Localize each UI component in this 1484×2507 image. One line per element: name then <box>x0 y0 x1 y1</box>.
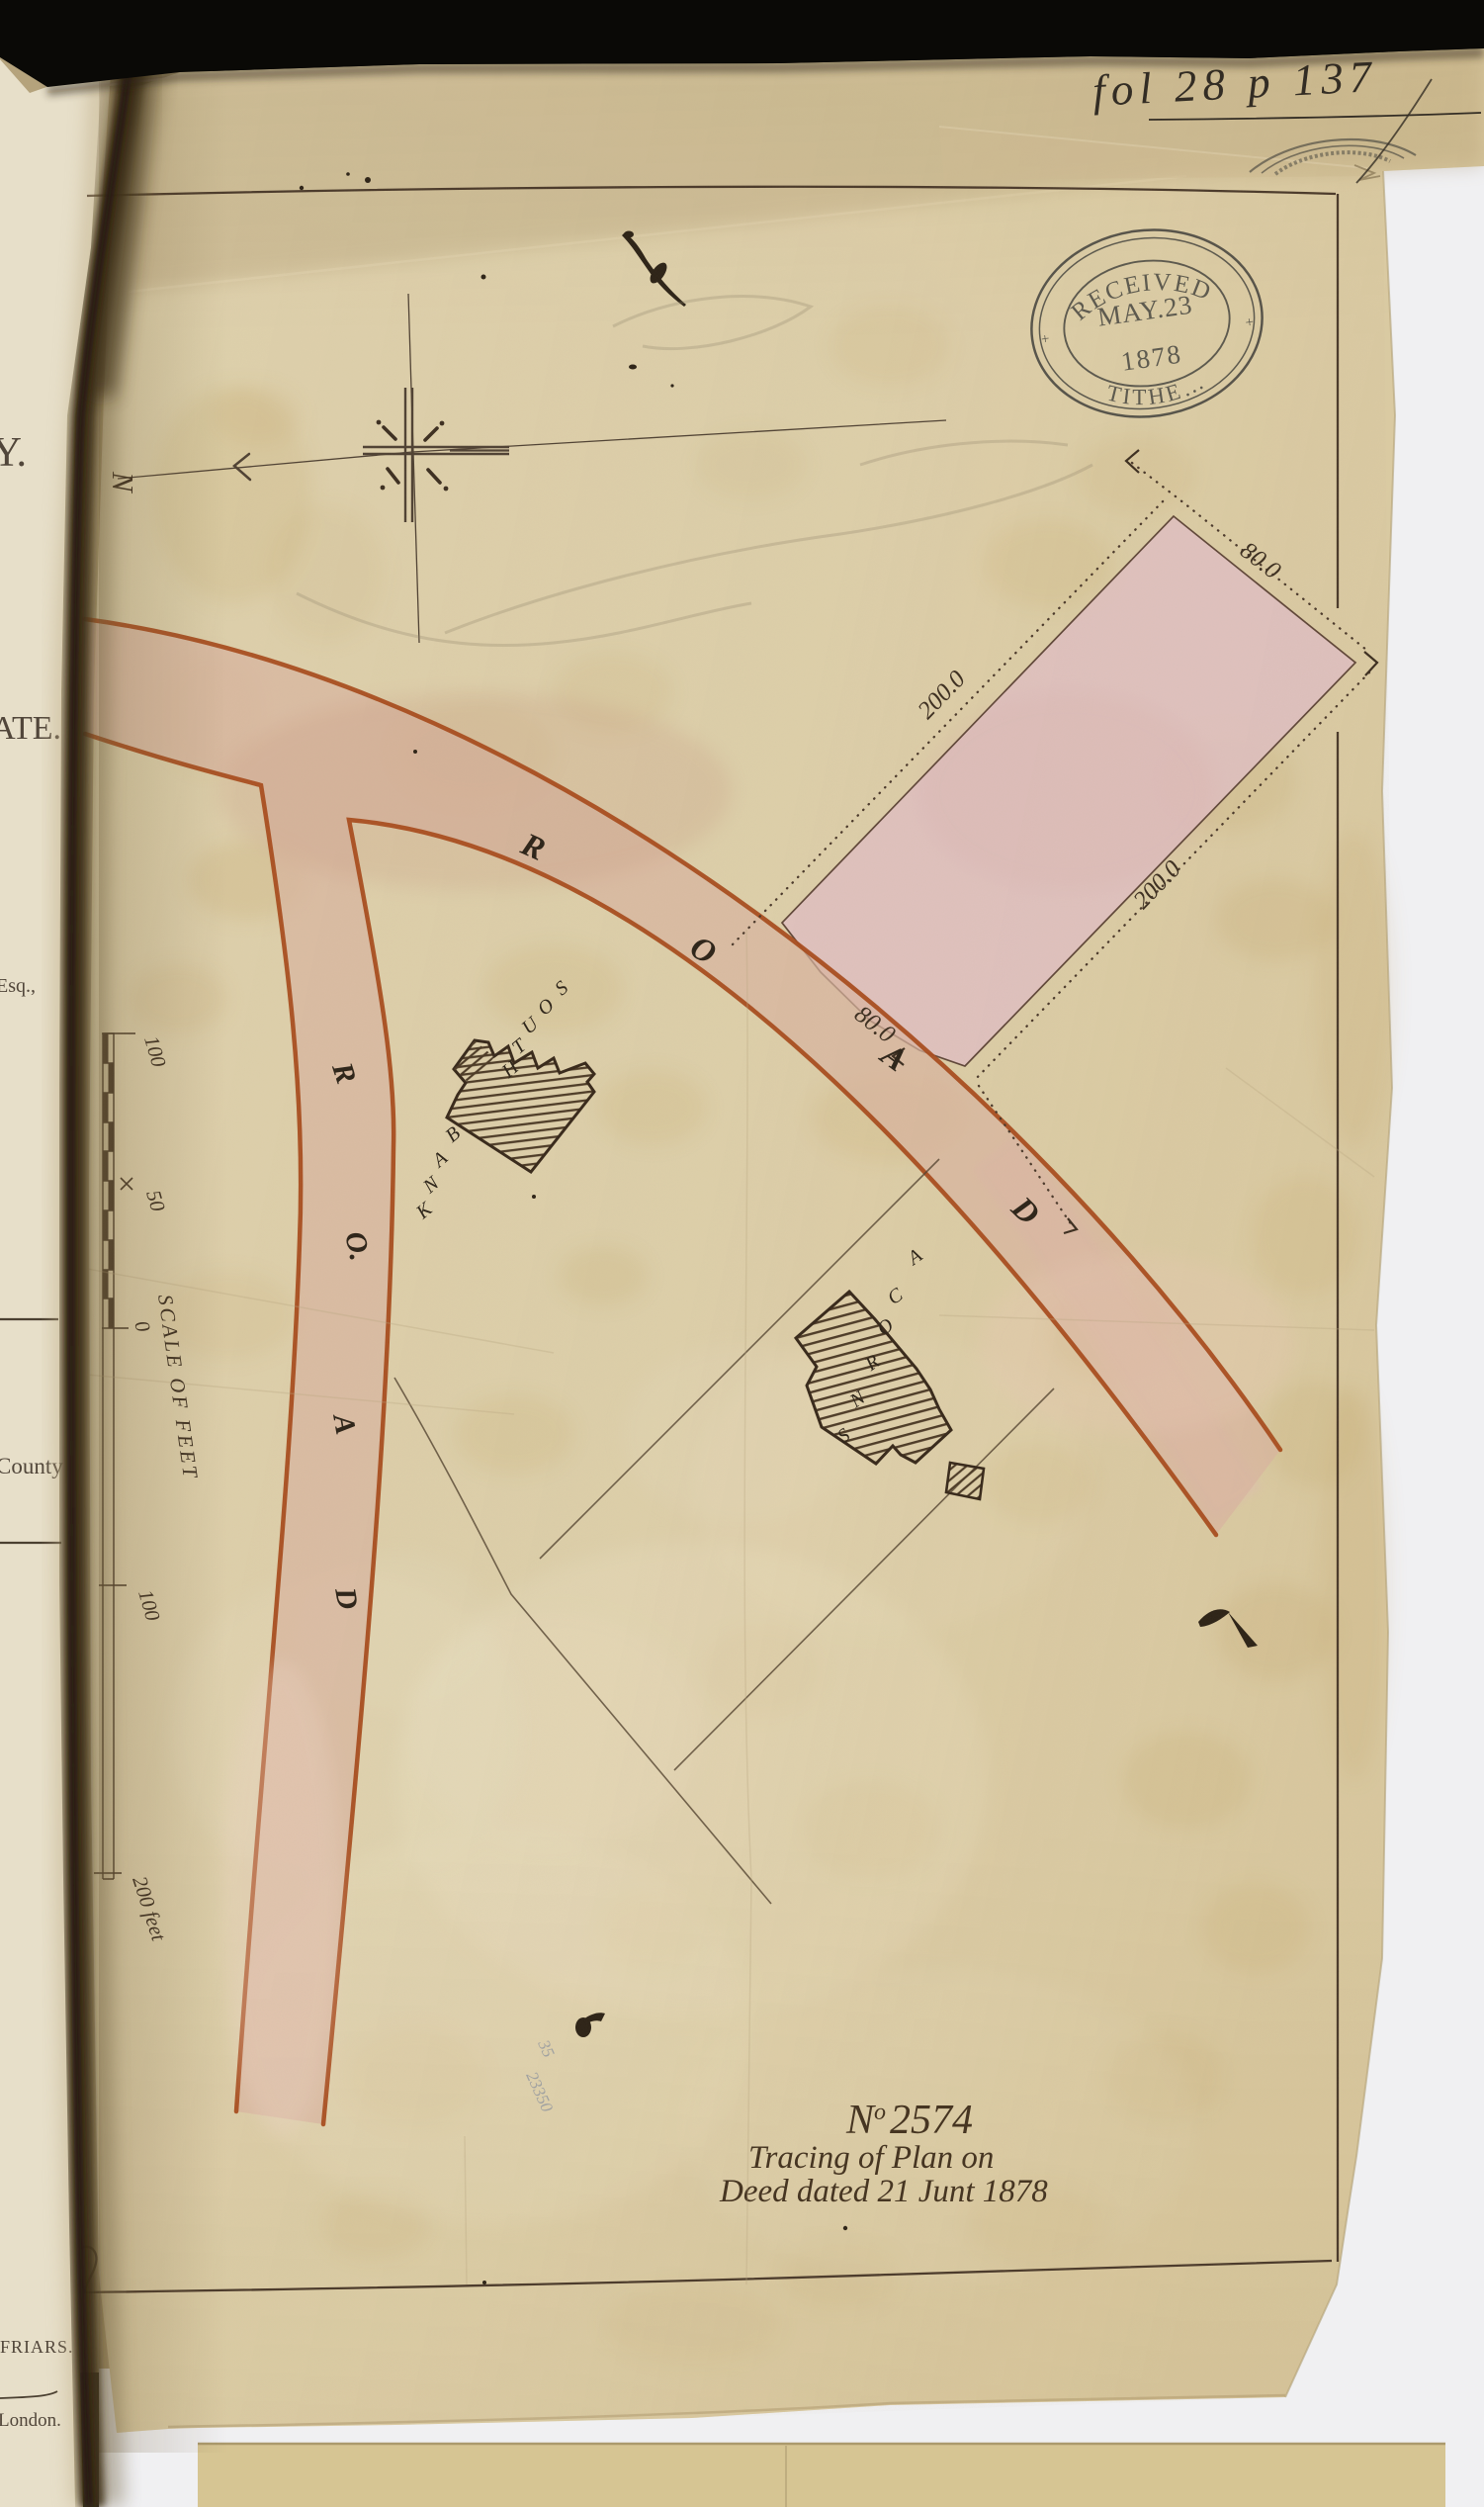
svg-text:Y.: Y. <box>0 430 27 476</box>
svg-text:London.: London. <box>0 2410 61 2431</box>
svg-text:ATE.: ATE. <box>0 710 61 747</box>
svg-text:Esq.,: Esq., <box>0 975 36 997</box>
svg-text:FRIARS.: FRIARS. <box>0 2337 74 2357</box>
